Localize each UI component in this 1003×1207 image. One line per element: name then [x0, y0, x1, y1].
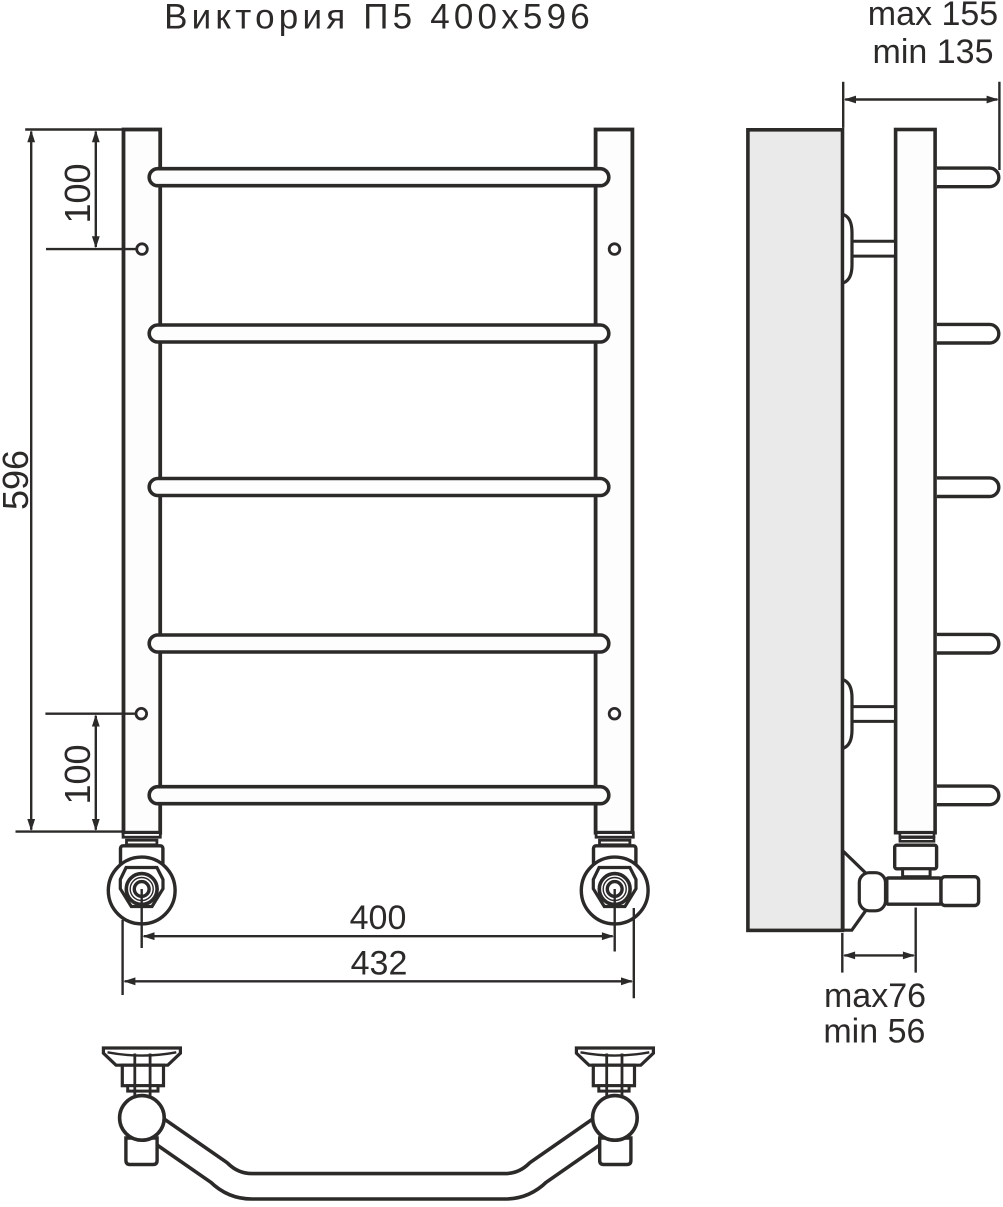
svg-text:100: 100 — [57, 744, 98, 804]
svg-text:max76: max76 — [824, 977, 926, 1015]
svg-text:596: 596 — [0, 450, 36, 510]
svg-text:100: 100 — [57, 163, 98, 223]
svg-text:min 56: min 56 — [823, 1013, 925, 1051]
svg-text:min 135: min 135 — [873, 33, 994, 71]
svg-text:max 155: max 155 — [868, 0, 998, 33]
svg-text:400: 400 — [350, 899, 407, 937]
svg-text:Виктория П5 400x596: Виктория П5 400x596 — [164, 0, 594, 37]
svg-text:432: 432 — [351, 945, 408, 983]
